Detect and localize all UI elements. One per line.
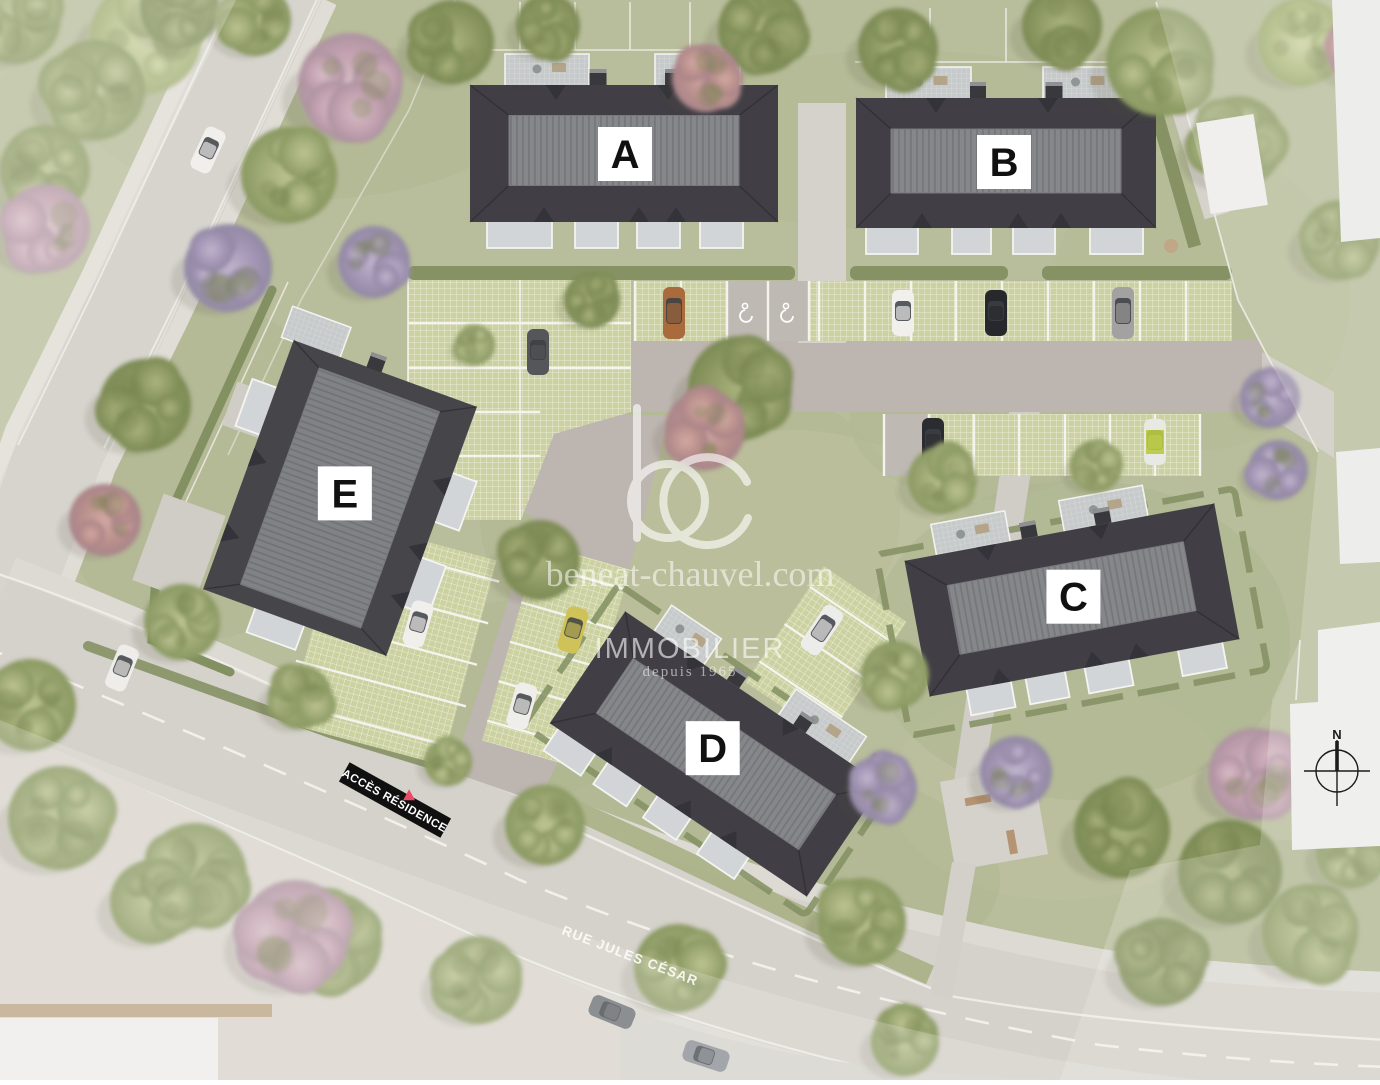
svg-text:beneat-chauvel.com: beneat-chauvel.com <box>546 554 835 594</box>
svg-text:D: D <box>698 727 727 771</box>
svg-text:E: E <box>332 472 359 516</box>
svg-text:IMMOBILIER: IMMOBILIER <box>595 633 786 665</box>
svg-text:depuis 1965: depuis 1965 <box>643 664 738 680</box>
svg-text:A: A <box>611 133 640 177</box>
svg-text:C: C <box>1059 576 1088 620</box>
svg-text:N: N <box>1332 727 1341 742</box>
svg-text:B: B <box>990 141 1019 185</box>
